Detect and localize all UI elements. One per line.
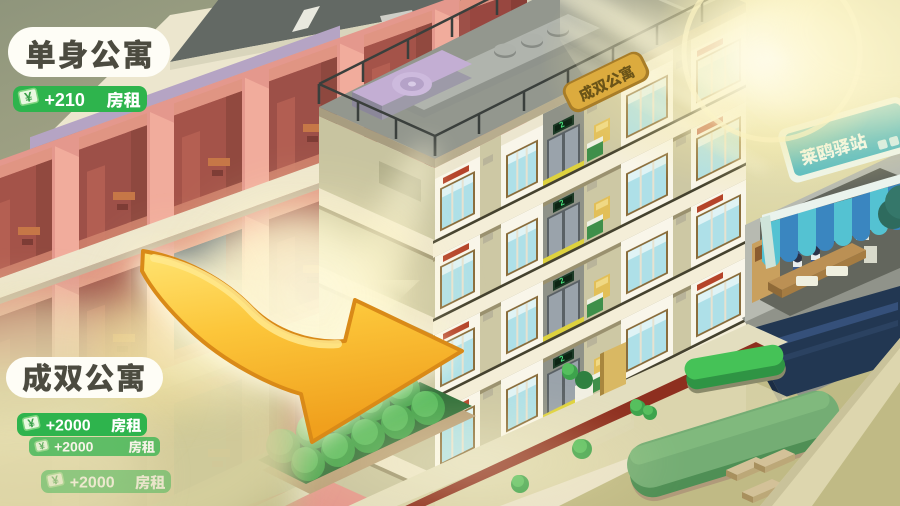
- svg-text:+2000: +2000: [70, 474, 115, 491]
- svg-text:+210: +210: [44, 90, 85, 110]
- svg-text:+2000: +2000: [46, 417, 91, 434]
- svg-text:+2000: +2000: [54, 438, 94, 454]
